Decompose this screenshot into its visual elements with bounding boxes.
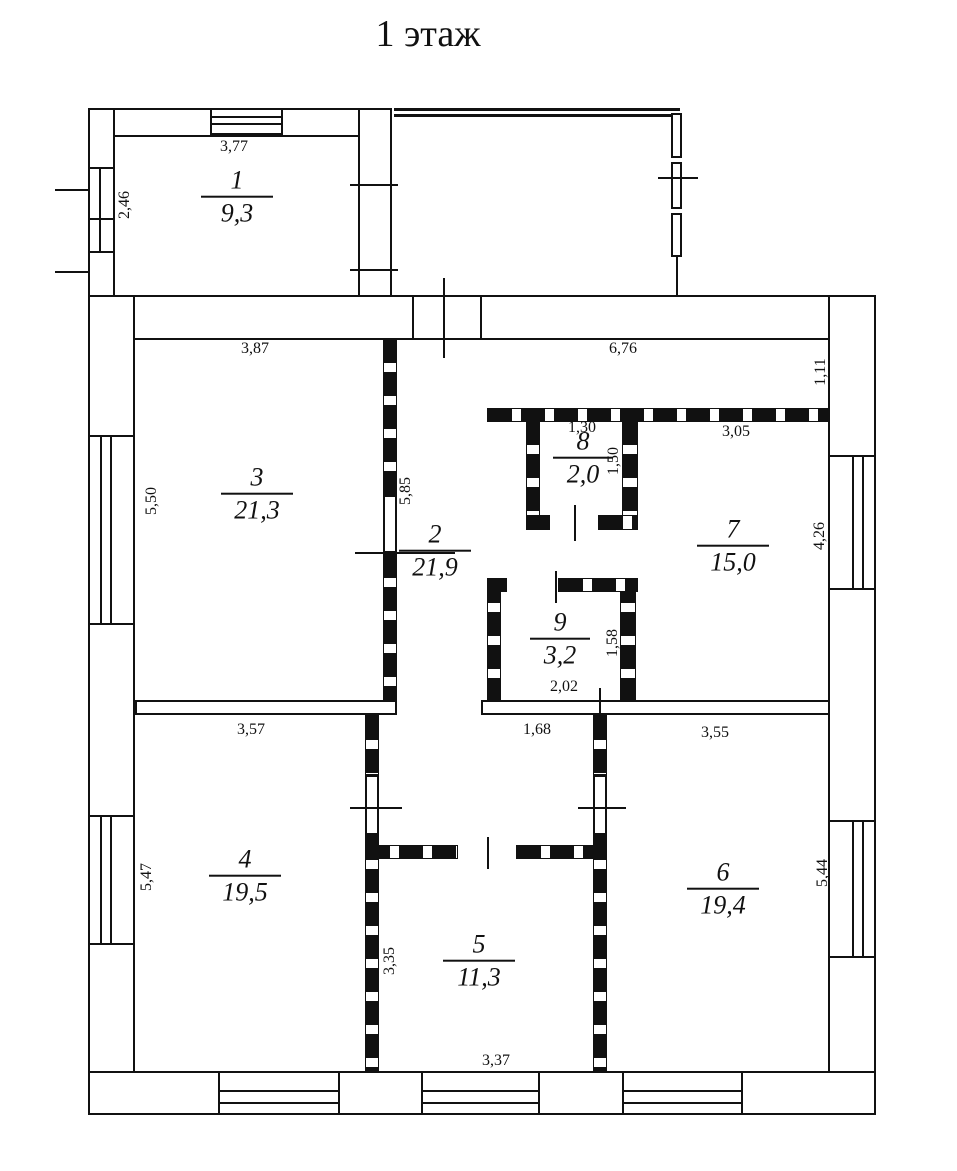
partition-room8-bottom-left	[526, 515, 550, 530]
entrance-door-tick	[443, 278, 445, 358]
dim-room1-height: 2,46	[116, 191, 134, 219]
partition-room6-corridor-upper	[593, 715, 607, 775]
window-bottom-room5-icon	[421, 1071, 540, 1115]
room-area: 15,0	[697, 547, 769, 576]
dim-room8-width: 1,30	[568, 419, 596, 437]
room-area: 21,3	[221, 495, 293, 524]
room-label-5: 5 11,3	[443, 931, 515, 992]
room-label-1: 1 9,3	[201, 167, 273, 228]
partition-room5-top-right	[516, 845, 607, 859]
terrace-railing-top	[394, 108, 680, 117]
partition-room3-hall-upper	[383, 338, 397, 495]
room-label-7: 7 15,0	[697, 516, 769, 577]
door-niche-room4	[365, 775, 379, 835]
room-area: 11,3	[443, 962, 515, 991]
dim-room6-width: 3,55	[701, 724, 729, 742]
wall-main-left	[88, 295, 135, 1115]
window-room3-left-icon	[88, 435, 135, 625]
door-tick-room8	[574, 505, 576, 541]
dim-room1-width: 3,77	[220, 138, 248, 156]
partition-room4-corridor-upper	[365, 715, 379, 775]
dim-room7-height: 4,26	[811, 522, 829, 550]
partition-room9-right	[620, 578, 636, 702]
room-number: 3	[221, 464, 293, 495]
partition-room9-left	[487, 578, 501, 702]
dimension-tick	[658, 177, 698, 179]
door-tick-room4	[350, 807, 402, 809]
terrace-railing-post	[671, 213, 682, 257]
room-area: 19,4	[687, 890, 759, 919]
room-area: 3,2	[530, 640, 590, 669]
room-area: 9,3	[201, 198, 273, 227]
dimension-tick	[350, 269, 398, 271]
dim-room9-width: 2,02	[550, 678, 578, 696]
dim-room7-width: 3,05	[722, 423, 750, 441]
dim-room3-width: 3,87	[241, 340, 269, 358]
room-label-4: 4 19,5	[209, 846, 281, 907]
window-bottom-room4-icon	[218, 1071, 340, 1115]
dim-room5-height: 3,35	[381, 947, 399, 975]
dim-room6-height: 5,44	[814, 859, 832, 887]
partition-room9-top-right	[558, 578, 638, 592]
dim-room8-height: 1,50	[605, 447, 623, 475]
room-area: 21,9	[399, 552, 471, 581]
wall-main-right	[828, 295, 876, 1115]
window-room6-right-icon	[828, 820, 876, 958]
dim-room5-width: 3,37	[482, 1052, 510, 1070]
dimension-tick	[55, 271, 90, 273]
partition-room9-top-left	[487, 578, 507, 592]
partition-room8-left	[526, 420, 540, 530]
door-tick-room5	[487, 837, 489, 869]
door-niche-room3	[383, 495, 397, 553]
wall-main-top	[88, 295, 876, 340]
room-label-9: 9 3,2	[530, 609, 590, 670]
partition-room8-right	[622, 420, 638, 530]
room-number: 7	[697, 516, 769, 547]
room-label-3: 3 21,3	[221, 464, 293, 525]
partition-room4-corridor-lower	[365, 835, 379, 1073]
dimension-tick	[55, 189, 90, 191]
terrace-railing-post	[671, 113, 682, 158]
terrace-railing-line	[676, 257, 678, 297]
entrance-door-opening	[412, 295, 482, 340]
room-number: 6	[687, 859, 759, 890]
partition-room6-corridor-lower	[593, 835, 607, 1073]
room-label-2: 2 21,9	[399, 521, 471, 582]
room-number: 2	[399, 521, 471, 552]
room-label-6: 6 19,4	[687, 859, 759, 920]
door-tick-room9	[555, 571, 557, 603]
partition-room5-top-left	[365, 845, 458, 859]
page-title: 1 этаж	[375, 12, 480, 56]
dim-hall-top-height: 1,11	[812, 358, 830, 385]
window-room1-left-icon	[88, 167, 115, 253]
dim-room4-width: 3,57	[237, 721, 265, 739]
wall-room1-terrace	[358, 108, 392, 300]
partition-room3-hall-lower	[383, 553, 397, 702]
door-niche-room6	[593, 775, 607, 835]
room-area: 2,0	[553, 459, 613, 488]
dim-room9-height: 1,58	[604, 629, 622, 657]
wall-mid-left	[135, 700, 397, 715]
room-number: 9	[530, 609, 590, 640]
window-room1-top-icon	[210, 108, 283, 135]
dim-room3-height: 5,50	[143, 487, 161, 515]
dim-room4-height: 5,47	[138, 863, 156, 891]
dimension-tick	[350, 184, 398, 186]
floor-plan: 1 этаж	[0, 0, 957, 1171]
window-room4-left-icon	[88, 815, 135, 945]
room-area: 19,5	[209, 877, 281, 906]
wall-mid-right	[481, 700, 830, 715]
dim-hall-top-width: 6,76	[609, 340, 637, 358]
partition-room8-bottom-right	[598, 515, 638, 530]
dim-corridor-opening: 1,68	[523, 721, 551, 739]
window-bottom-room6-icon	[622, 1071, 743, 1115]
dim-hall-height: 5,85	[397, 477, 415, 505]
room-number: 1	[201, 167, 273, 198]
door-tick-room6	[578, 807, 626, 809]
room-number: 4	[209, 846, 281, 877]
window-room7-right-icon	[828, 455, 876, 590]
room-number: 5	[443, 931, 515, 962]
terrace-railing-post	[671, 162, 682, 209]
